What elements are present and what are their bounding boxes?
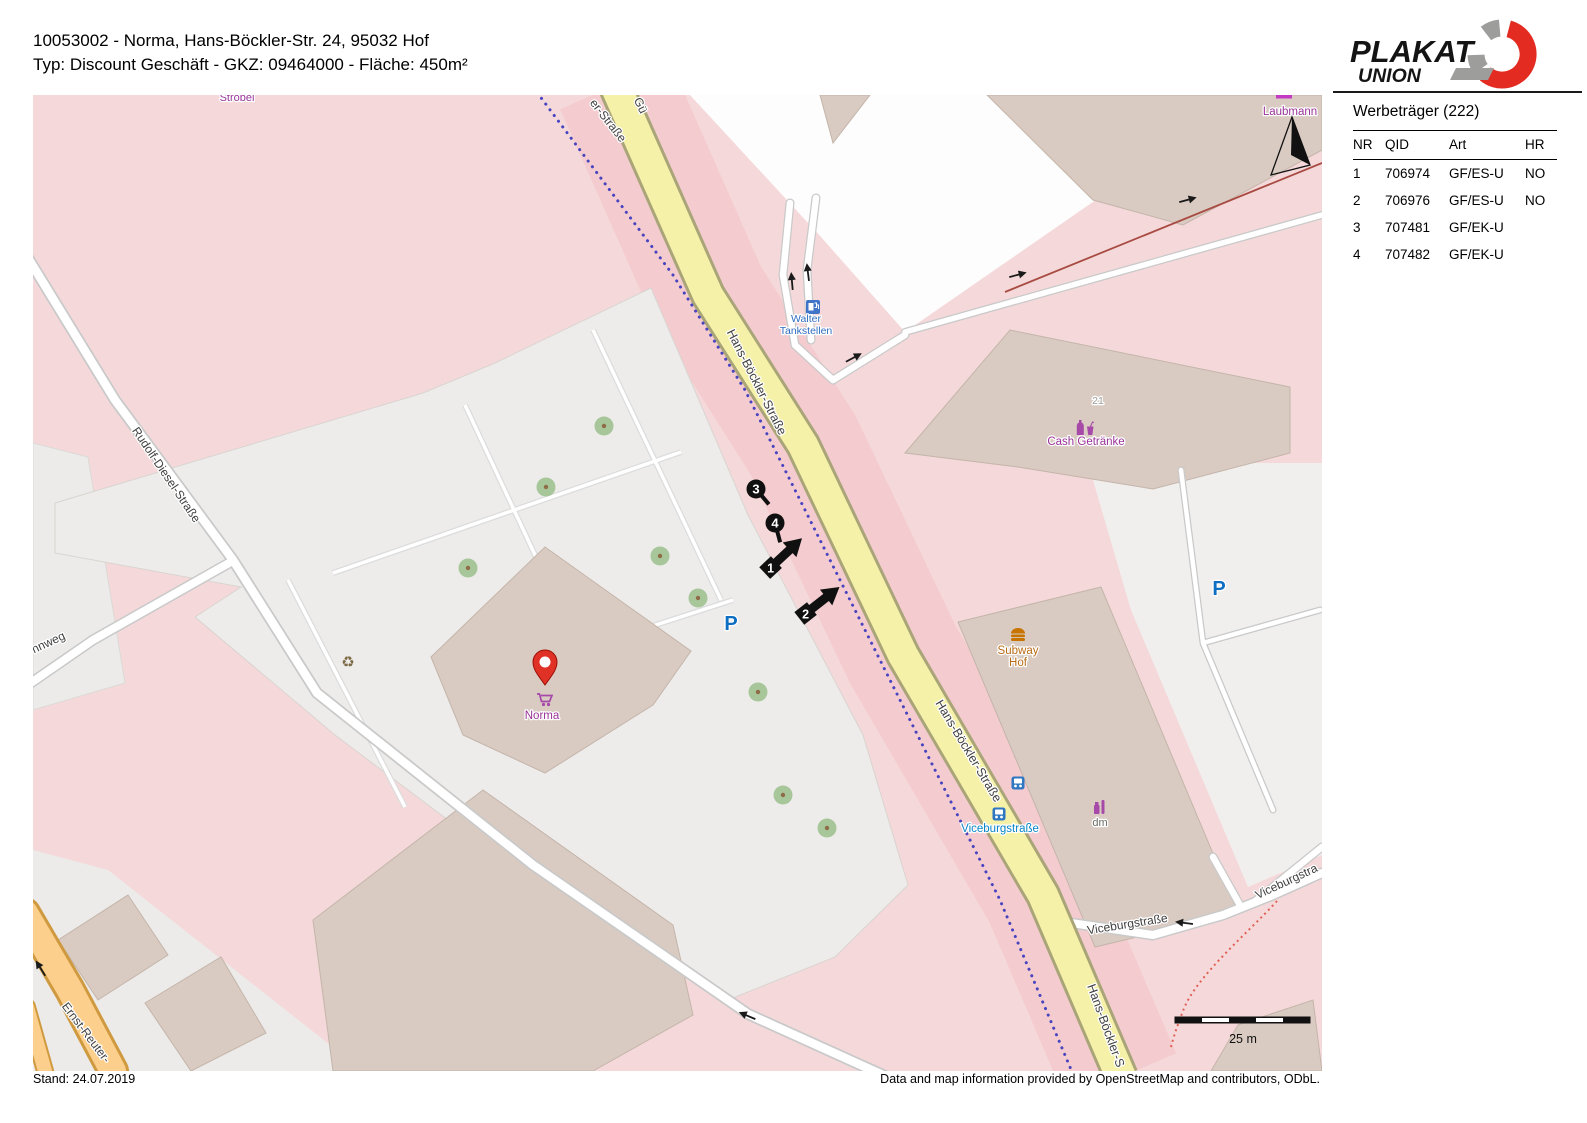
map-label: Cash Getränke (1047, 436, 1124, 448)
table-cell: GF/EK-U (1449, 220, 1525, 235)
map-label: Tankstellen (780, 325, 833, 337)
tree-center (466, 566, 470, 570)
tree-center (756, 690, 760, 694)
map-label: Hof (1009, 657, 1028, 669)
table-cell: 707482 (1385, 247, 1449, 262)
table-row: 3707481GF/EK-U (1353, 214, 1557, 241)
recycle-icon: ♻ (341, 654, 354, 671)
table-row: 2706976GF/ES-UNO (1353, 187, 1557, 214)
logo-word-union: UNION (1358, 65, 1422, 87)
table-header-row: NRQIDArtHR (1353, 130, 1557, 160)
tree-center (825, 826, 829, 830)
tree-center (781, 793, 785, 797)
map-label: Ströbel (220, 95, 255, 104)
werbetraeger-title: Werbeträger (222) (1353, 103, 1557, 121)
logo-divider (1333, 91, 1582, 93)
table-cell: GF/ES-U (1449, 166, 1525, 181)
tree-center (602, 424, 606, 428)
map-label: 21 (1092, 395, 1104, 407)
map-label: Subway (998, 645, 1039, 657)
table-cell: 706974 (1385, 166, 1449, 181)
marker-number: 4 (771, 516, 779, 531)
map-canvas: ♻StröbelLaubmanner-StraßeGüHans-Böckler-… (33, 95, 1322, 1071)
table-cell: 4 (1353, 247, 1385, 262)
scale-label: 25 m (1229, 1032, 1257, 1046)
table-cell: GF/EK-U (1449, 247, 1525, 262)
burger-icon (1011, 628, 1025, 641)
table-cell (1525, 220, 1557, 235)
table-cell: 3 (1353, 220, 1385, 235)
map-attribution: Data and map information provided by Ope… (880, 1072, 1320, 1086)
marker-number: 2 (802, 607, 809, 621)
table-cell: 706976 (1385, 193, 1449, 208)
logo-slash (1450, 68, 1494, 80)
bus-icon (993, 808, 1006, 821)
map-label: P (1212, 578, 1225, 600)
table-row: 1706974GF/ES-UNO (1353, 160, 1557, 187)
map-label: Viceburgstraße (961, 823, 1039, 835)
table-cell: NO (1525, 166, 1557, 181)
map-label: Norma (525, 710, 560, 722)
stand-date: Stand: 24.07.2019 (33, 1072, 135, 1086)
table-header-cell: NR (1353, 137, 1385, 152)
werbetraeger-table: NRQIDArtHR1706974GF/ES-UNO2706976GF/ES-U… (1353, 130, 1557, 268)
page-header: 10053002 - Norma, Hans-Böckler-Str. 24, … (33, 29, 468, 77)
map-label: dm (1092, 817, 1107, 829)
map-label: P (724, 613, 737, 635)
table-header-cell: QID (1385, 137, 1449, 152)
table-cell (1525, 247, 1557, 262)
werbetraeger-panel: Werbeträger (222) NRQIDArtHR1706974GF/ES… (1353, 103, 1557, 268)
table-header-cell: Art (1449, 137, 1525, 152)
clipped-poi-icon (1276, 95, 1292, 99)
table-row: 4707482GF/EK-U (1353, 241, 1557, 268)
fuel-icon (806, 300, 820, 314)
marker-number: 3 (752, 482, 759, 497)
marker-number: 1 (767, 561, 774, 575)
logo-graphic: PLAKAT UNION (1350, 18, 1550, 90)
table-cell: NO (1525, 193, 1557, 208)
tree-center (544, 485, 548, 489)
table-cell: 1 (1353, 166, 1385, 181)
tree-center (696, 596, 700, 600)
logo-word-plakat: PLAKAT (1350, 34, 1476, 69)
map-label: Walter (791, 313, 821, 325)
map-label: Laubmann (1263, 106, 1317, 118)
table-header-cell: HR (1525, 137, 1557, 152)
table-cell: GF/ES-U (1449, 193, 1525, 208)
map: ♻StröbelLaubmanner-StraßeGüHans-Böckler-… (33, 95, 1322, 1071)
bus-icon (1012, 777, 1025, 790)
svg-text:♻: ♻ (341, 654, 354, 671)
plakat-union-logo: PLAKAT UNION (1350, 18, 1550, 90)
page-title: 10053002 - Norma, Hans-Böckler-Str. 24, … (33, 29, 468, 53)
table-cell: 2 (1353, 193, 1385, 208)
tree-center (658, 554, 662, 558)
page-subtitle: Typ: Discount Geschäft - GKZ: 09464000 -… (33, 53, 468, 77)
table-cell: 707481 (1385, 220, 1449, 235)
